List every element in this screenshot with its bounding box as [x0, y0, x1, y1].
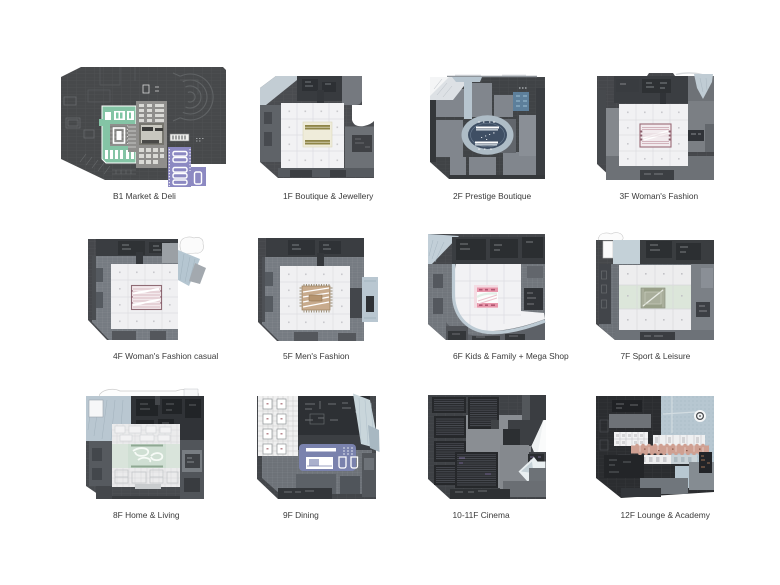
svg-text:9F Dining: 9F Dining [283, 510, 319, 520]
svg-text:10-11F Cinema: 10-11F Cinema [453, 510, 510, 520]
svg-text:8F Home & Living: 8F Home & Living [113, 510, 180, 520]
svg-text:7F Sport & Leisure: 7F Sport & Leisure [621, 351, 691, 361]
svg-text:5F Men's Fashion: 5F Men's Fashion [283, 351, 350, 361]
svg-text:12F Lounge & Academy: 12F Lounge & Academy [621, 510, 711, 520]
svg-text:1F Boutique & Jewellery: 1F Boutique & Jewellery [283, 191, 374, 201]
svg-text:4F Woman's Fashion casual: 4F Woman's Fashion casual [113, 351, 218, 361]
svg-text:2F Prestige Boutique: 2F Prestige Boutique [453, 191, 532, 201]
svg-text:3F Woman's Fashion: 3F Woman's Fashion [620, 191, 699, 201]
svg-text:6F Kids & Family + Mega Shop: 6F Kids & Family + Mega Shop [453, 351, 569, 361]
svg-text:B1 Market & Deli: B1 Market & Deli [113, 191, 176, 201]
